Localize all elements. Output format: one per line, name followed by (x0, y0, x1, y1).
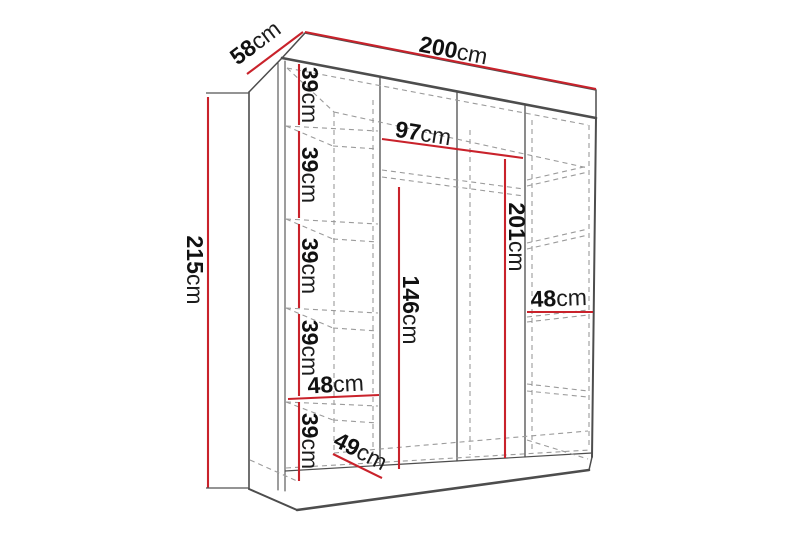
dim-left-col-width-label: 48cm (307, 370, 365, 399)
wardrobe-dimension-drawing: 58cm 200cm 215cm 39cm 39cm 39cm 39cm 39c… (0, 0, 800, 533)
dim-depth-label: 58cm (225, 15, 286, 70)
dim-shelf-gap-5-label: 39cm (297, 413, 323, 469)
dim-shelf-gap-3-label: 39cm (297, 238, 323, 294)
dim-right-col-width-label: 48cm (530, 284, 587, 312)
dim-shelf-gap-1-label: 39cm (297, 67, 323, 123)
dim-shelf-gap-4-label: 39cm (297, 320, 323, 376)
dim-shelf-gap-2-label: 39cm (297, 147, 323, 203)
diagram-canvas: 58cm 200cm 215cm 39cm 39cm 39cm 39cm 39c… (0, 0, 800, 533)
dim-hang-height-label: 146cm (398, 275, 424, 344)
dim-height-label: 215cm (182, 235, 208, 304)
dim-interior-height-label: 201cm (504, 202, 530, 271)
dim-mid-width-label: 97cm (393, 116, 453, 150)
